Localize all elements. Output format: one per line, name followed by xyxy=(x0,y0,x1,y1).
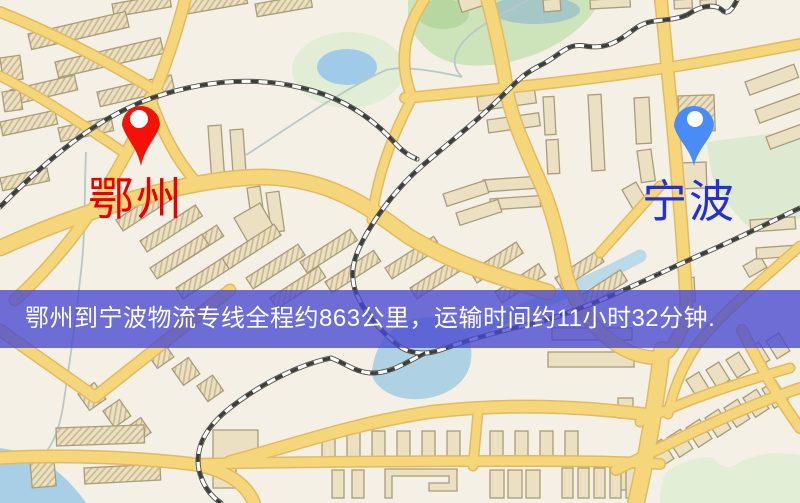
map-canvas xyxy=(0,0,800,503)
destination-pin-dot xyxy=(687,111,703,127)
route-info-text: 鄂州到宁波物流专线全程约863公里，运输时间约11小时32分钟. xyxy=(0,290,800,348)
destination-pin-icon xyxy=(670,99,718,167)
origin-pin-icon xyxy=(118,97,164,167)
origin-pin-dot xyxy=(130,110,148,128)
destination-label: 宁波 xyxy=(642,179,736,224)
route-info-banner: 鄂州到宁波物流专线全程约863公里，运输时间约11小时32分钟. xyxy=(0,290,800,348)
map-screenshot: 鄂州到宁波物流专线全程约863公里，运输时间约11小时32分钟. 鄂州 宁波 xyxy=(0,0,800,503)
origin-label: 鄂州 xyxy=(88,176,184,222)
